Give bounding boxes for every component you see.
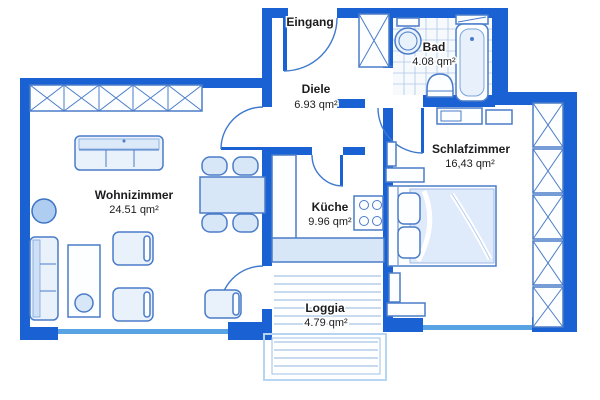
dining-chair [233, 157, 258, 175]
armchair-armrest [233, 293, 239, 315]
bedroom-window [423, 325, 532, 330]
kitchen-counter-left [272, 155, 296, 239]
bedroom-right-wall [563, 92, 577, 332]
label-wohnzimmer: Wohnizimmer [95, 188, 174, 202]
dresser [437, 108, 482, 124]
top-wall-left [262, 8, 288, 18]
desk [387, 303, 425, 316]
sofa-button [123, 140, 126, 143]
sofa-left-back [33, 240, 40, 317]
left-outer-wall [20, 78, 30, 340]
dining-table [200, 177, 265, 213]
terrace-outer-border [264, 334, 386, 380]
area-bad: 4.08 qm² [412, 56, 456, 68]
kitchen-top-wall-right [343, 147, 365, 155]
dining-chair [202, 157, 227, 175]
livingroom-door-leaf [221, 147, 263, 150]
nightstand [386, 168, 424, 182]
hall-wall-stub [337, 99, 365, 108]
shelf-small [387, 142, 396, 166]
livingroom-bottomright-corner [228, 322, 272, 340]
bathtub-drain [470, 37, 474, 41]
kitchen-counter-bottom [272, 238, 384, 262]
dining-chair [233, 214, 258, 232]
dining-chair [202, 214, 227, 232]
sofa-back [79, 139, 159, 149]
area-schlafzimmer: 16,43 qm² [445, 158, 495, 170]
livingroom-furniture [30, 85, 265, 321]
pillow [398, 193, 420, 224]
sink-counter [397, 18, 419, 26]
hall-closet [359, 14, 389, 67]
dresser-small [486, 110, 512, 124]
livingroom-door-arc [221, 107, 263, 149]
walls [20, 8, 577, 340]
terrace-planks [274, 342, 378, 366]
label-eingang: Eingang [286, 15, 333, 29]
hall-left-wall [262, 8, 272, 107]
pillow [398, 227, 420, 258]
bedroom-wardrobe [533, 103, 563, 327]
room-labels: Eingang Diele 6.93 qm² Bad 4.08 qm² Schl… [95, 15, 511, 329]
bath-outer-right-wall [492, 8, 508, 105]
livingroom-window [58, 329, 228, 334]
floor-plan-canvas: Eingang Diele 6.93 qm² Bad 4.08 qm² Schl… [0, 0, 600, 400]
bedroom-door-leaf [421, 108, 424, 153]
armchair-armrest [144, 292, 150, 317]
floor-plan: Eingang Diele 6.93 qm² Bad 4.08 qm² Schl… [0, 0, 600, 400]
kitchen-door-arc [312, 155, 343, 186]
area-loggia: 4.79 qm² [304, 317, 348, 329]
table-bowl [75, 294, 93, 312]
area-kueche: 9.96 qm² [308, 216, 352, 228]
desk-side [389, 273, 400, 302]
kitchen-top-wall-left [262, 147, 312, 155]
label-diele: Diele [302, 82, 331, 96]
area-wohnzimmer: 24.51 qm² [109, 204, 159, 216]
label-loggia: Loggia [305, 301, 345, 315]
windows [58, 325, 532, 334]
armchair-armrest [144, 236, 150, 261]
toilet-icon [427, 74, 453, 97]
plant-icon [32, 199, 56, 223]
label-bad: Bad [423, 40, 446, 54]
label-kueche: Küche [312, 200, 349, 214]
livingroom-bottomleft-corner [20, 327, 58, 340]
bedroom-furniture [386, 103, 563, 327]
label-schlafzimmer: Schlafzimmer [432, 142, 510, 156]
terrace-inner-border [272, 338, 380, 374]
kitchen-door-leaf [340, 155, 343, 186]
area-diele: 6.93 qm² [294, 99, 338, 111]
bedroom-bottomleft-corner [383, 318, 423, 332]
